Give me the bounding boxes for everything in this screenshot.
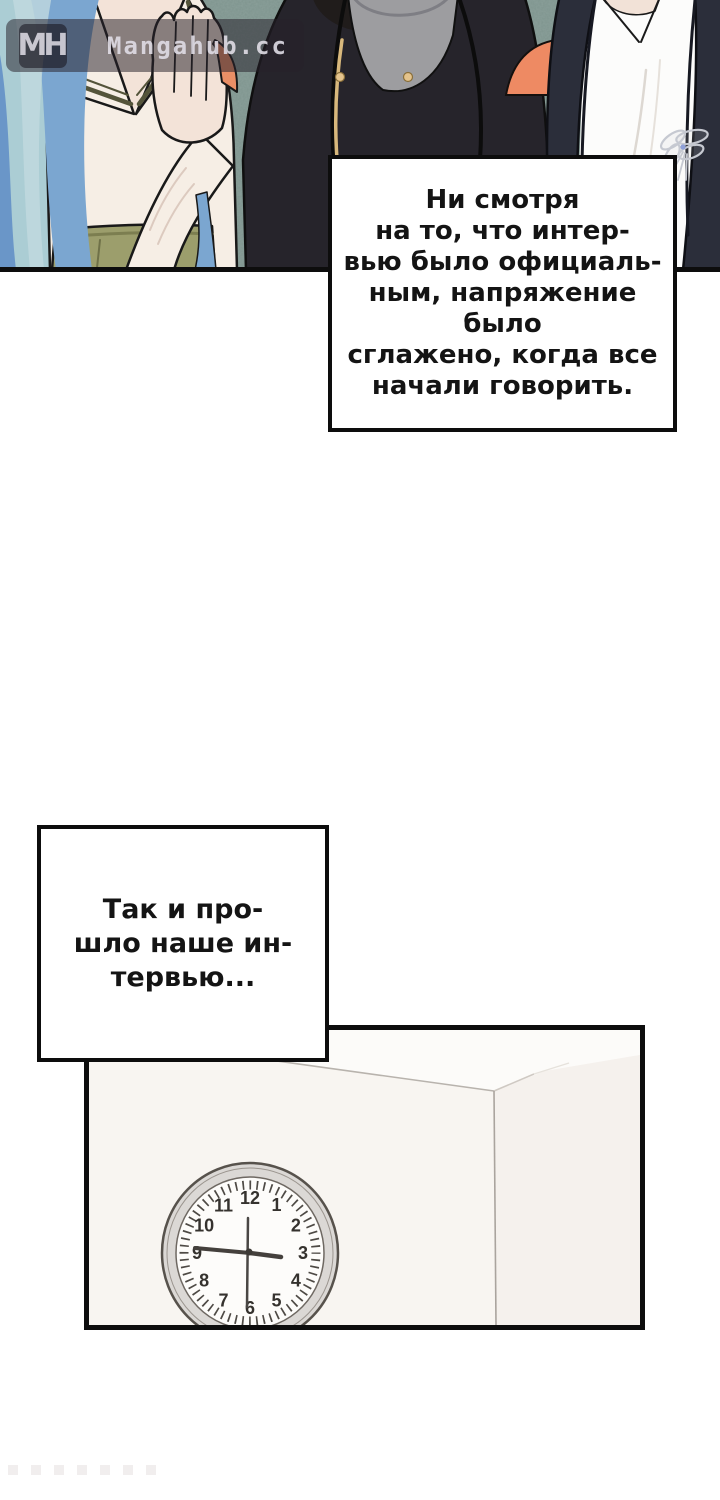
- watermark-dot: [31, 1465, 41, 1475]
- narration-line: шло наше ин-: [74, 927, 292, 961]
- narration-line: вью было официаль-: [343, 247, 661, 278]
- watermark: MH Mangahub.cc: [6, 19, 304, 72]
- narration-box-2: Так и про- шло наше ин- тервью...: [37, 825, 329, 1062]
- clock-number: 10: [194, 1216, 214, 1236]
- faint-watermark-dots: [8, 1465, 156, 1475]
- clock-number: 8: [199, 1271, 209, 1291]
- narration-line: Ни смотря: [426, 185, 580, 216]
- clock-number: 1: [271, 1195, 281, 1215]
- panel-clock-room: 1 2 3 4 5 6 7 8 9 10 11 12: [84, 1025, 645, 1330]
- watermark-dot: [77, 1465, 87, 1475]
- clock-number: 7: [218, 1291, 228, 1311]
- wall-clock: 1 2 3 4 5 6 7 8 9 10 11 12: [162, 1163, 338, 1325]
- narration-line: на то, что интер-: [375, 216, 630, 247]
- narration-box-1: Ни смотря на то, что интер- вью было офи…: [328, 155, 677, 432]
- clock-number: 11: [214, 1195, 233, 1215]
- watermark-dot: [54, 1465, 64, 1475]
- clock-number: 2: [291, 1216, 301, 1236]
- watermark-site-text: Mangahub.cc: [107, 32, 288, 60]
- clock-number: 3: [298, 1243, 308, 1263]
- narration-line: тервью...: [111, 961, 255, 995]
- narration-line: ным, напряжение было: [332, 278, 673, 340]
- clock-center-pin: [246, 1249, 253, 1256]
- manga-page: MH Mangahub.cc Ни смотря на то, что инте…: [0, 0, 720, 1500]
- clock-second-hand: [247, 1218, 248, 1307]
- clock-number: 9: [192, 1243, 202, 1263]
- watermark-logo-text: MH: [18, 28, 65, 63]
- clock-number: 4: [291, 1271, 301, 1291]
- watermark-logo: MH: [19, 24, 67, 68]
- jacket-stud: [336, 73, 345, 82]
- watermark-dot: [146, 1465, 156, 1475]
- watermark-dot: [100, 1465, 110, 1475]
- narration-line: Так и про-: [103, 893, 263, 927]
- narration-line: сглажено, когда все: [347, 340, 657, 371]
- clock-number: 12: [240, 1188, 260, 1208]
- clock-number: 5: [271, 1291, 281, 1311]
- clock-room-art: 1 2 3 4 5 6 7 8 9 10 11 12: [89, 1030, 640, 1325]
- watermark-dot: [8, 1465, 18, 1475]
- narration-line: начали говорить.: [372, 371, 633, 402]
- watermark-dot: [123, 1465, 133, 1475]
- jacket-stud: [404, 73, 413, 82]
